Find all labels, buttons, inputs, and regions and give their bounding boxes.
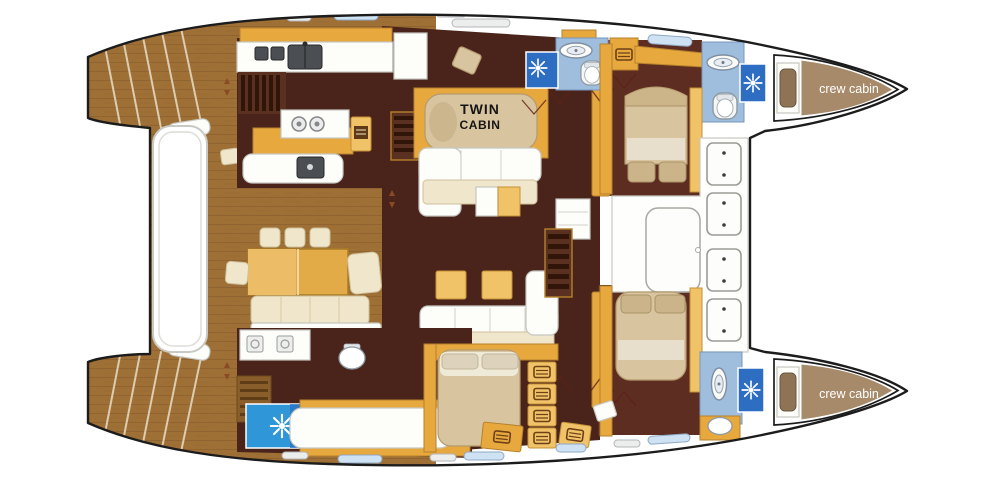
crew-cabin-label-port: crew cabin — [819, 82, 879, 96]
washbasin-icon — [560, 43, 592, 58]
companionway-stairs — [238, 72, 286, 114]
pillow — [482, 354, 518, 369]
galley-backsplash — [240, 28, 392, 42]
toilet-icon — [708, 418, 732, 435]
bed-sheet — [618, 340, 684, 360]
pillow — [655, 295, 685, 313]
galley-hob-left — [255, 47, 268, 60]
bow-rigging-lines — [752, 176, 836, 324]
crew-cabin-starboard: crew cabin — [774, 359, 898, 425]
pillow — [659, 162, 686, 182]
twin-berth-pillow — [429, 102, 457, 142]
cockpit-seat — [707, 249, 741, 291]
port-locker-cabinet — [610, 38, 638, 70]
washbasin-icon — [712, 368, 727, 400]
shower-light-icon — [744, 74, 762, 92]
side-table — [436, 271, 466, 299]
cockpit-table — [646, 208, 700, 292]
dining-chair — [260, 228, 280, 247]
twin-cabin-label-line1: TWIN — [460, 101, 500, 117]
toilet-icon — [713, 93, 737, 119]
dining-chair — [347, 252, 382, 295]
coffee-machine-icon — [297, 157, 324, 178]
coffee-table — [476, 187, 520, 216]
crew-cabin-label-starboard: crew cabin — [819, 387, 879, 401]
washbasin-square-icon — [277, 336, 293, 352]
twin-cabin-label: TWIN CABIN — [460, 101, 501, 132]
shower-light-icon — [529, 59, 547, 77]
washbasin-square-icon — [247, 336, 263, 352]
wardrobe — [394, 33, 427, 79]
pillow — [628, 162, 655, 182]
pillow — [442, 354, 478, 369]
crew-berth-cushion — [780, 69, 796, 107]
dining-chair — [225, 261, 249, 285]
washbasin-icon — [707, 55, 739, 70]
twin-cabin-label-line2: CABIN — [460, 118, 501, 132]
oven-icon — [351, 117, 371, 151]
dining-chair — [310, 228, 330, 247]
hull-stairs-starboard — [545, 229, 572, 297]
dining-table-leaf — [248, 249, 296, 295]
cockpit-seat — [707, 193, 741, 235]
cockpit-seat — [707, 299, 741, 341]
galley-hob-left — [271, 47, 284, 60]
galley-island — [243, 154, 343, 183]
dining-chair — [285, 228, 305, 247]
crew-cabin-port: crew cabin — [774, 55, 898, 121]
bed-sheet — [627, 138, 685, 160]
cockpit-seat — [707, 143, 741, 185]
side-table — [482, 271, 512, 299]
table-latch — [696, 248, 701, 253]
galley-sink-icon — [288, 42, 322, 70]
pillow — [621, 295, 651, 313]
crew-berth-cushion — [780, 373, 796, 411]
cockpit-bench — [153, 126, 207, 352]
yacht-floorplan: crew cabin crew cabin TWIN CABIN — [0, 0, 1000, 479]
shower-stall — [526, 52, 558, 88]
shower-light-icon — [742, 381, 760, 399]
